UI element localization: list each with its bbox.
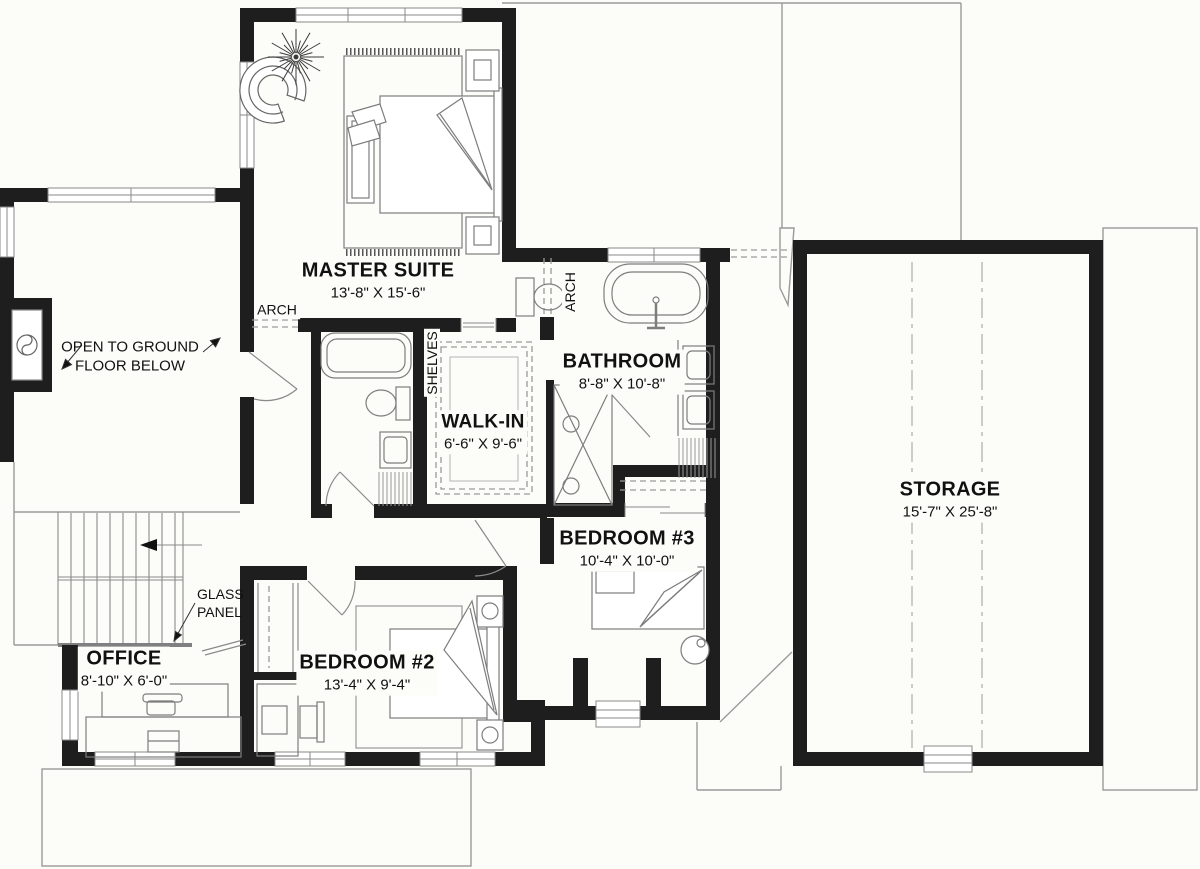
annotation-line: OPEN TO GROUND (61, 338, 199, 357)
room-dims: 15'-7" X 25'-8" (900, 504, 1001, 523)
annotation-line: PANEL (197, 604, 244, 622)
fireplace (12, 310, 42, 380)
ensuite-fixtures (321, 333, 411, 506)
room-dims: 8'-10" X 6'-0" (81, 673, 167, 692)
annotation-text: SHELVES (424, 331, 440, 395)
annotation-line: GLASS (197, 586, 244, 604)
floor-plan: MASTER SUITE 13'-8" X 15'-6" BATHROOM 8'… (0, 0, 1200, 869)
staircase (58, 512, 202, 645)
annotation-shelves: SHELVES (424, 329, 440, 397)
room-label-storage: STORAGE 15'-7" X 25'-8" (897, 478, 1004, 523)
room-dims: 13'-8" X 15'-6" (302, 285, 455, 304)
annotation-arch-bathroom: ARCH (562, 270, 578, 314)
annotation-open-to-below: OPEN TO GROUND FLOOR BELOW (58, 338, 202, 376)
master-bed (344, 50, 502, 254)
room-label-master-suite: MASTER SUITE 13'-8" X 15'-6" (299, 259, 458, 304)
annotation-line: FLOOR BELOW (61, 357, 199, 376)
room-label-bedroom-2: BEDROOM #2 13'-4" X 9'-4" (296, 651, 437, 696)
bedroom3-furniture (592, 567, 709, 664)
shower (554, 385, 612, 505)
room-name: BEDROOM #3 (559, 527, 694, 552)
room-dims: 10'-4" X 10'-0" (559, 553, 694, 572)
plant-icon (268, 29, 324, 85)
room-name: MASTER SUITE (302, 259, 455, 284)
roof-outlines (14, 3, 1197, 866)
room-label-office: OFFICE 8'-10" X 6'-0" (78, 647, 170, 692)
office-furniture (86, 684, 241, 757)
room-name: WALK-IN (441, 410, 524, 434)
annotation-text: ARCH (257, 301, 297, 317)
room-dims: 8'-8" X 10'-8" (563, 376, 682, 395)
floor-plan-drawing (0, 0, 1200, 869)
room-label-bathroom: BATHROOM 8'-8" X 10'-8" (560, 350, 685, 395)
room-name: OFFICE (81, 647, 167, 672)
room-name: STORAGE (900, 478, 1001, 503)
room-label-bedroom-3: BEDROOM #3 10'-4" X 10'-0" (556, 527, 697, 572)
annotation-text: ARCH (562, 272, 578, 312)
room-name: BATHROOM (563, 350, 682, 375)
annotation-arch-left: ARCH (254, 301, 300, 319)
annotation-glass-panel: GLASS PANEL (194, 586, 247, 621)
room-label-walk-in: WALK-IN 6'-6" X 9'-6" (438, 410, 527, 454)
room-dims: 13'-4" X 9'-4" (299, 677, 434, 696)
room-name: BEDROOM #2 (299, 651, 434, 676)
room-dims: 6'-6" X 9'-6" (441, 435, 524, 454)
